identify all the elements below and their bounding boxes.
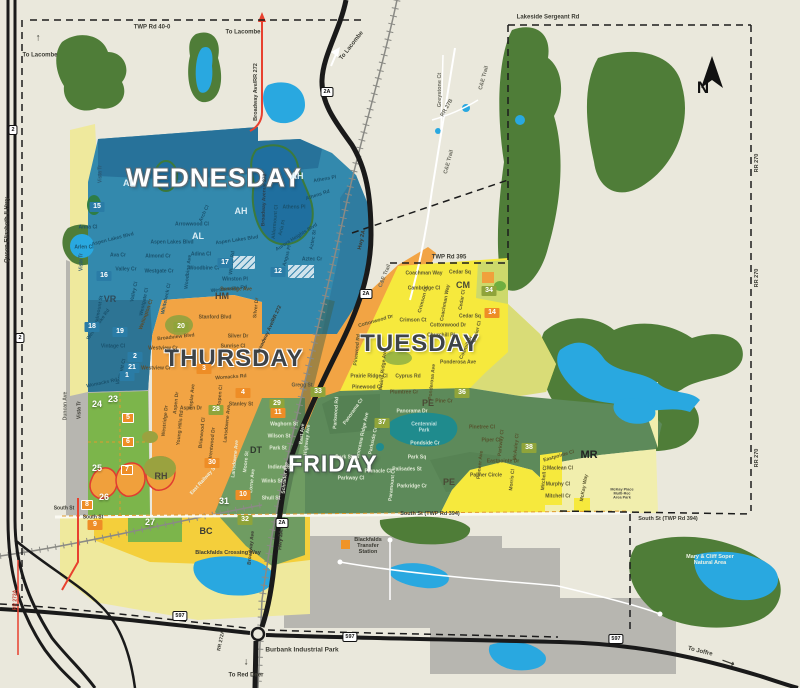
map-canvas [0, 0, 800, 688]
friday-dark-block [322, 394, 380, 434]
roundabout [252, 628, 264, 640]
zone-34-pale [476, 260, 508, 304]
compass-north-label: N [697, 78, 709, 98]
collection-schedule-map: WEDNESDAYTHURSDAYTUESDAYFRIDAYALALAHAHVR… [0, 0, 800, 688]
transfer-station-icon [341, 540, 350, 549]
